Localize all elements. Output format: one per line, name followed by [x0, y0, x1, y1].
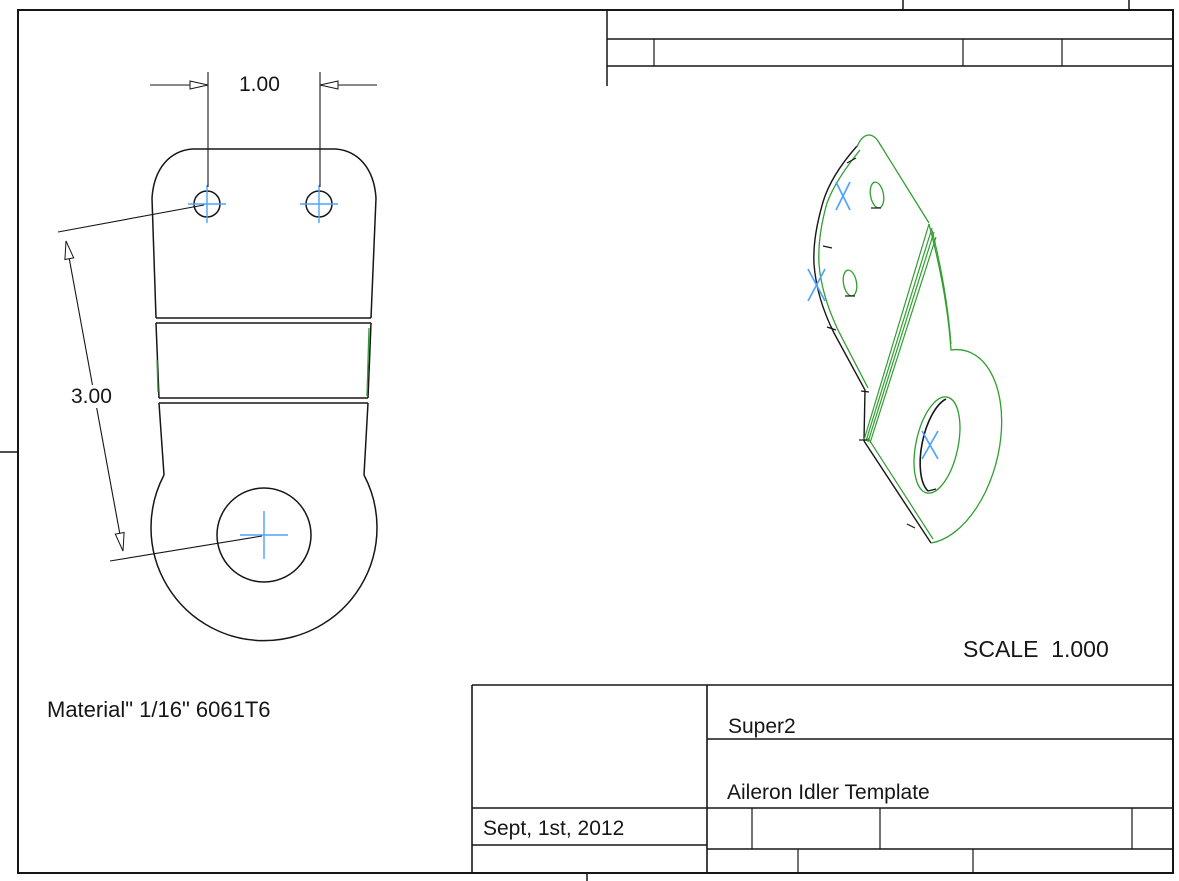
front-view[interactable]	[151, 149, 377, 641]
part-left-upper-edge[interactable]	[152, 149, 192, 318]
iso-hole-large[interactable]	[906, 393, 967, 498]
isometric-view[interactable]	[808, 135, 1002, 543]
iso-bend-line-4[interactable]	[870, 237, 936, 443]
arrowhead-right	[320, 81, 338, 89]
iso-hole-small-2[interactable]	[841, 269, 858, 297]
arrowhead-left	[190, 81, 208, 89]
iso-bend-line-3[interactable]	[868, 232, 934, 442]
iso-lobe-outline[interactable]	[929, 224, 1002, 543]
iso-top-right-edge[interactable]	[857, 135, 929, 223]
arrowhead-top	[65, 241, 74, 260]
drawing-sheet: 1.00 3.00 Material" 1/16" 6061T6 SCALE 1…	[0, 0, 1179, 881]
part-left-lower-edge[interactable]	[159, 403, 164, 475]
arrowhead-bottom	[115, 533, 124, 552]
part-right-lower-edge[interactable]	[364, 403, 368, 475]
extension-line-top	[58, 205, 204, 232]
revision-table	[607, 10, 1173, 86]
center-mark-large-hole	[240, 511, 288, 559]
title-block-project-text[interactable]: Super2	[728, 715, 796, 738]
center-mark-left-hole	[188, 185, 226, 223]
iso-bottom-inner-edge[interactable]	[868, 438, 933, 539]
iso-bend-line-1[interactable]	[864, 224, 929, 440]
extension-line-bottom	[110, 536, 262, 561]
title-block	[472, 685, 1173, 873]
title-block-drawing-title-text[interactable]: Aileron Idler Template	[727, 781, 930, 804]
iso-bend-line-2[interactable]	[866, 228, 932, 441]
dimension-height-label[interactable]: 3.00	[68, 385, 115, 408]
sheet-frame	[0, 0, 1173, 881]
part-right-upper-edge[interactable]	[336, 149, 376, 318]
iso-hole-small-1[interactable]	[868, 181, 885, 209]
dimension-width-label[interactable]: 1.00	[236, 73, 283, 96]
drawing-canvas	[0, 0, 1179, 881]
center-mark-right-hole	[300, 185, 338, 223]
iso-x-marker-3	[922, 431, 938, 459]
height-dimension[interactable]	[58, 205, 262, 561]
iso-left-inner-edge[interactable]	[819, 150, 868, 388]
material-note[interactable]: Material" 1/16" 6061T6	[47, 698, 271, 722]
iso-x-marker-1	[836, 182, 850, 210]
iso-hole-large-thickness-arc	[920, 399, 946, 491]
title-block-date-text[interactable]: Sept, 1st, 2012	[483, 817, 624, 840]
scale-label[interactable]: SCALE 1.000	[963, 637, 1109, 662]
